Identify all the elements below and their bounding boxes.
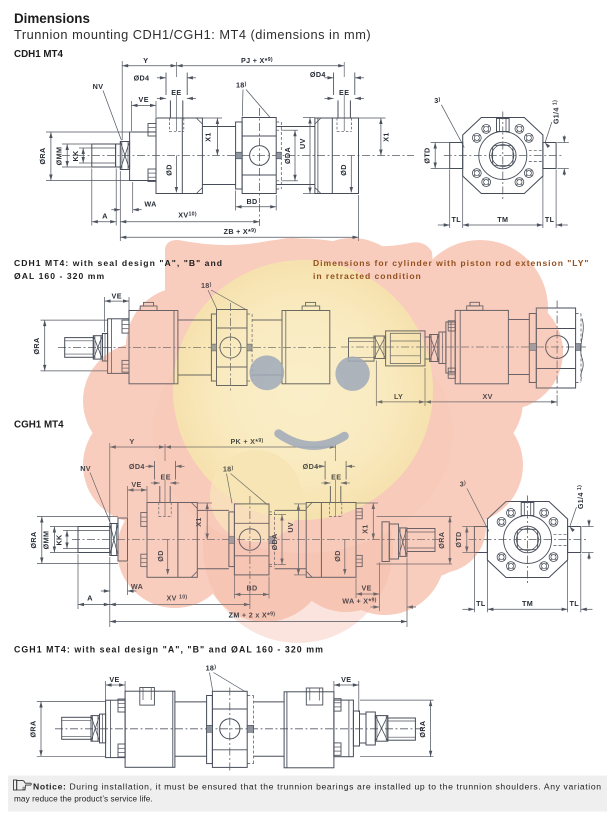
svg-text:X1: X1 — [194, 517, 203, 527]
svg-text:EE: EE — [339, 88, 349, 97]
svg-text:X1: X1 — [204, 132, 213, 142]
svg-text:ØDA: ØDA — [270, 533, 279, 550]
svg-text:CDH1 MT4: with seal design "A": CDH1 MT4: with seal design "A", "B" and — [14, 258, 223, 268]
svg-text:ØRA: ØRA — [32, 337, 41, 354]
svg-text:KK: KK — [71, 150, 80, 162]
svg-text:ØD: ØD — [156, 550, 165, 561]
svg-text:WA: WA — [144, 200, 156, 209]
svg-text:ØRA: ØRA — [28, 720, 37, 737]
svg-text:VE: VE — [109, 675, 119, 684]
svg-text:UV: UV — [286, 522, 295, 533]
svg-text:ØMM: ØMM — [55, 147, 64, 166]
svg-text:Dimensions: Dimensions — [14, 11, 90, 26]
svg-text:Notice: During installation, i: Notice: During installation, it must be … — [33, 782, 602, 792]
svg-text:LY: LY — [394, 392, 403, 401]
svg-text:ØRA: ØRA — [437, 532, 446, 549]
svg-text:Trunnion mounting CDH1/CGH1: M: Trunnion mounting CDH1/CGH1: MT4 (dimens… — [14, 27, 371, 42]
svg-text:ØD4: ØD4 — [129, 462, 145, 471]
svg-text:XV: XV — [482, 392, 492, 401]
svg-text:ØAL 160 - 320 mm: ØAL 160 - 320 mm — [14, 271, 105, 281]
svg-text:ØD: ØD — [333, 550, 342, 561]
svg-text:CGH1 MT4: with seal design "A": CGH1 MT4: with seal design "A", "B" and … — [14, 645, 324, 655]
svg-text:EE: EE — [331, 473, 341, 482]
svg-text:EE: EE — [171, 88, 181, 97]
svg-text:VE: VE — [361, 584, 371, 593]
svg-text:TL: TL — [545, 215, 555, 224]
svg-text:Y: Y — [129, 437, 134, 446]
svg-text:ØTD: ØTD — [423, 147, 432, 163]
svg-text:ØD: ØD — [164, 164, 173, 175]
svg-text:ØRA: ØRA — [29, 531, 38, 548]
svg-text:CGH1 MT4: CGH1 MT4 — [14, 420, 64, 431]
svg-text:X1: X1 — [360, 524, 369, 534]
svg-text:VE: VE — [112, 291, 122, 300]
svg-text:VE: VE — [139, 95, 149, 104]
svg-text:TL: TL — [570, 599, 580, 608]
svg-text:KK: KK — [55, 534, 64, 546]
svg-text:A: A — [102, 211, 108, 220]
svg-text:BD: BD — [246, 197, 257, 206]
svg-text:NV: NV — [80, 464, 91, 473]
svg-text:ØRA: ØRA — [418, 721, 427, 738]
svg-text:ØDA: ØDA — [283, 147, 292, 164]
svg-text:EE: EE — [161, 473, 171, 482]
svg-text:ØD4: ØD4 — [134, 73, 150, 82]
svg-text:A: A — [87, 593, 93, 602]
svg-text:BD: BD — [246, 584, 257, 593]
svg-text:Dimensions for cylinder with p: Dimensions for cylinder with piston rod … — [313, 258, 589, 268]
svg-text:ØTD: ØTD — [454, 531, 463, 547]
svg-text:ØD4: ØD4 — [310, 70, 326, 79]
svg-text:X1: X1 — [381, 132, 390, 142]
svg-text:WA: WA — [131, 582, 143, 591]
svg-text:TL: TL — [476, 599, 486, 608]
svg-text:VE: VE — [131, 480, 141, 489]
svg-text:ØD: ØD — [339, 164, 348, 175]
svg-text:UV: UV — [298, 138, 307, 149]
svg-text:TM: TM — [497, 215, 508, 224]
svg-text:TM: TM — [522, 599, 533, 608]
svg-text:Y: Y — [143, 56, 148, 65]
svg-text:ØD4: ØD4 — [303, 462, 319, 471]
svg-text:ØMM: ØMM — [42, 531, 51, 550]
svg-text:ZM + 2 x X*9): ZM + 2 x X*9) — [229, 610, 276, 619]
svg-text:VE: VE — [341, 675, 351, 684]
svg-text:in retracted condition: in retracted condition — [313, 271, 422, 281]
svg-text:may reduce the product’s servi: may reduce the product’s service life. — [14, 795, 153, 804]
svg-text:NV: NV — [93, 82, 104, 91]
svg-text:TL: TL — [451, 215, 461, 224]
svg-text:CDH1 MT4: CDH1 MT4 — [14, 49, 64, 60]
svg-text:ØRA: ØRA — [38, 147, 47, 164]
